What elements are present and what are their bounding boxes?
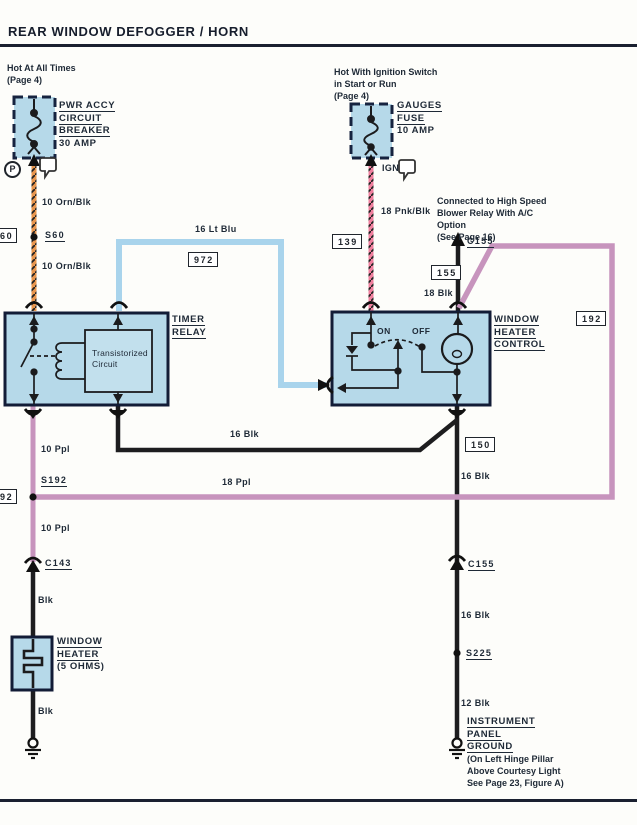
- page-title: REAR WINDOW DEFOGGER / HORN: [8, 24, 249, 39]
- breaker-label-line3: BREAKER: [59, 126, 110, 137]
- wire-label-blk18: 18 Blk: [424, 288, 453, 298]
- wires: [33, 160, 612, 738]
- splice-s192-dot: [29, 493, 36, 500]
- fuse-label-line1: GAUGES: [397, 101, 442, 112]
- splice-label-s60: S60: [45, 230, 65, 242]
- connector-label-c155-mid: C155: [468, 559, 495, 571]
- wire-label-blk16-lower: 16 Blk: [461, 610, 490, 620]
- window-heater-control-box: [332, 312, 490, 405]
- ref-box-60: 60: [0, 228, 17, 243]
- splice-s60-dot: [30, 233, 37, 240]
- ref-box-192: 192: [576, 311, 606, 326]
- ground-symbol-right: [449, 739, 465, 759]
- control-on-label: ON: [377, 326, 391, 336]
- splice-s225-dot: [453, 649, 460, 656]
- window-heater-control-label: WINDOW HEATER CONTROL: [494, 314, 545, 352]
- control-off-label: OFF: [412, 326, 431, 336]
- breaker-note: Hot At All Times (Page 4): [7, 62, 76, 86]
- fuse-rating: 10 AMP: [397, 125, 442, 138]
- connector-c143: [25, 558, 41, 572]
- fuse-label-line2: FUSE: [397, 114, 425, 125]
- breaker-note-line2: (Page 4): [7, 74, 76, 86]
- ref-box-92: 92: [0, 489, 17, 504]
- ref-box-972: 972: [188, 252, 218, 267]
- splice-label-s225: S225: [466, 648, 492, 660]
- components: [5, 97, 490, 690]
- wire-label-orn-upper: 10 Orn/Blk: [42, 197, 91, 207]
- wire-label-ppl18: 18 Ppl: [222, 477, 251, 487]
- blower-note-line1: Connected to High Speed: [437, 195, 547, 207]
- instrument-panel-ground-label: INSTRUMENT PANEL GROUND: [467, 716, 535, 754]
- footer-rule: [0, 799, 637, 802]
- ground-location-note: (On Left Hinge Pillar Above Courtesy Lig…: [467, 753, 564, 789]
- window-heater-label: WINDOW HEATER (5 OHMS): [57, 636, 105, 674]
- connector-c155-mid: [449, 556, 465, 570]
- blower-note-line2: Blower Relay With A/C: [437, 207, 547, 219]
- wire-label-blk16-mid: 16 Blk: [230, 429, 259, 439]
- connector-label-c143: C143: [45, 558, 72, 570]
- breaker-label-line1: PWR ACCY: [59, 101, 115, 112]
- header-rule: [0, 44, 637, 47]
- wire-label-ppl10-upper: 10 Ppl: [41, 444, 70, 454]
- wire-label-lt-blu: 16 Lt Blu: [195, 224, 237, 234]
- ground-symbol-left: [25, 739, 41, 759]
- breaker-rating: 30 AMP: [59, 138, 115, 151]
- wiring-diagram-page: REAR WINDOW DEFOGGER / HORN Hot At All T…: [0, 0, 637, 825]
- splice-label-s192: S192: [41, 475, 67, 487]
- fuse-label: GAUGES FUSE 10 AMP: [397, 100, 442, 138]
- transistorized-circuit-label: Transistorized Circuit: [92, 348, 148, 370]
- wire-label-blk-upper: Blk: [38, 595, 53, 605]
- connector-tag-icon-right: [399, 160, 415, 179]
- ign-terminal-label: IGN: [382, 163, 399, 173]
- wire-label-blk12: 12 Blk: [461, 698, 490, 708]
- fuse-note-line2: in Start or Run: [334, 78, 437, 90]
- connector-label-c155-top: C155: [467, 236, 494, 248]
- ref-box-139: 139: [332, 234, 362, 249]
- ref-box-150: 150: [465, 437, 495, 452]
- blower-note-line3: Option: [437, 219, 547, 231]
- power-terminal-icon: P: [4, 161, 21, 178]
- wire-black-16-blk-horizontal: [118, 404, 457, 450]
- wire-label-pnk: 18 Pnk/Blk: [381, 206, 431, 216]
- breaker-label-line2: CIRCUIT: [59, 114, 102, 125]
- breaker-label: PWR ACCY CIRCUIT BREAKER 30 AMP: [59, 100, 115, 150]
- timer-relay-label: TIMER RELAY: [172, 314, 206, 339]
- fuse-note-line1: Hot With Ignition Switch: [334, 66, 437, 78]
- connector-tag-icon-left: [40, 158, 56, 177]
- wire-label-blk-lower: Blk: [38, 706, 53, 716]
- wire-label-orn-lower: 10 Orn/Blk: [42, 261, 91, 271]
- fuse-note: Hot With Ignition Switch in Start or Run…: [334, 66, 437, 102]
- ref-box-155: 155: [431, 265, 461, 280]
- breaker-note-line1: Hot At All Times: [7, 62, 76, 74]
- wire-label-blk16-upper: 16 Blk: [461, 471, 490, 481]
- wire-label-ppl10-lower: 10 Ppl: [41, 523, 70, 533]
